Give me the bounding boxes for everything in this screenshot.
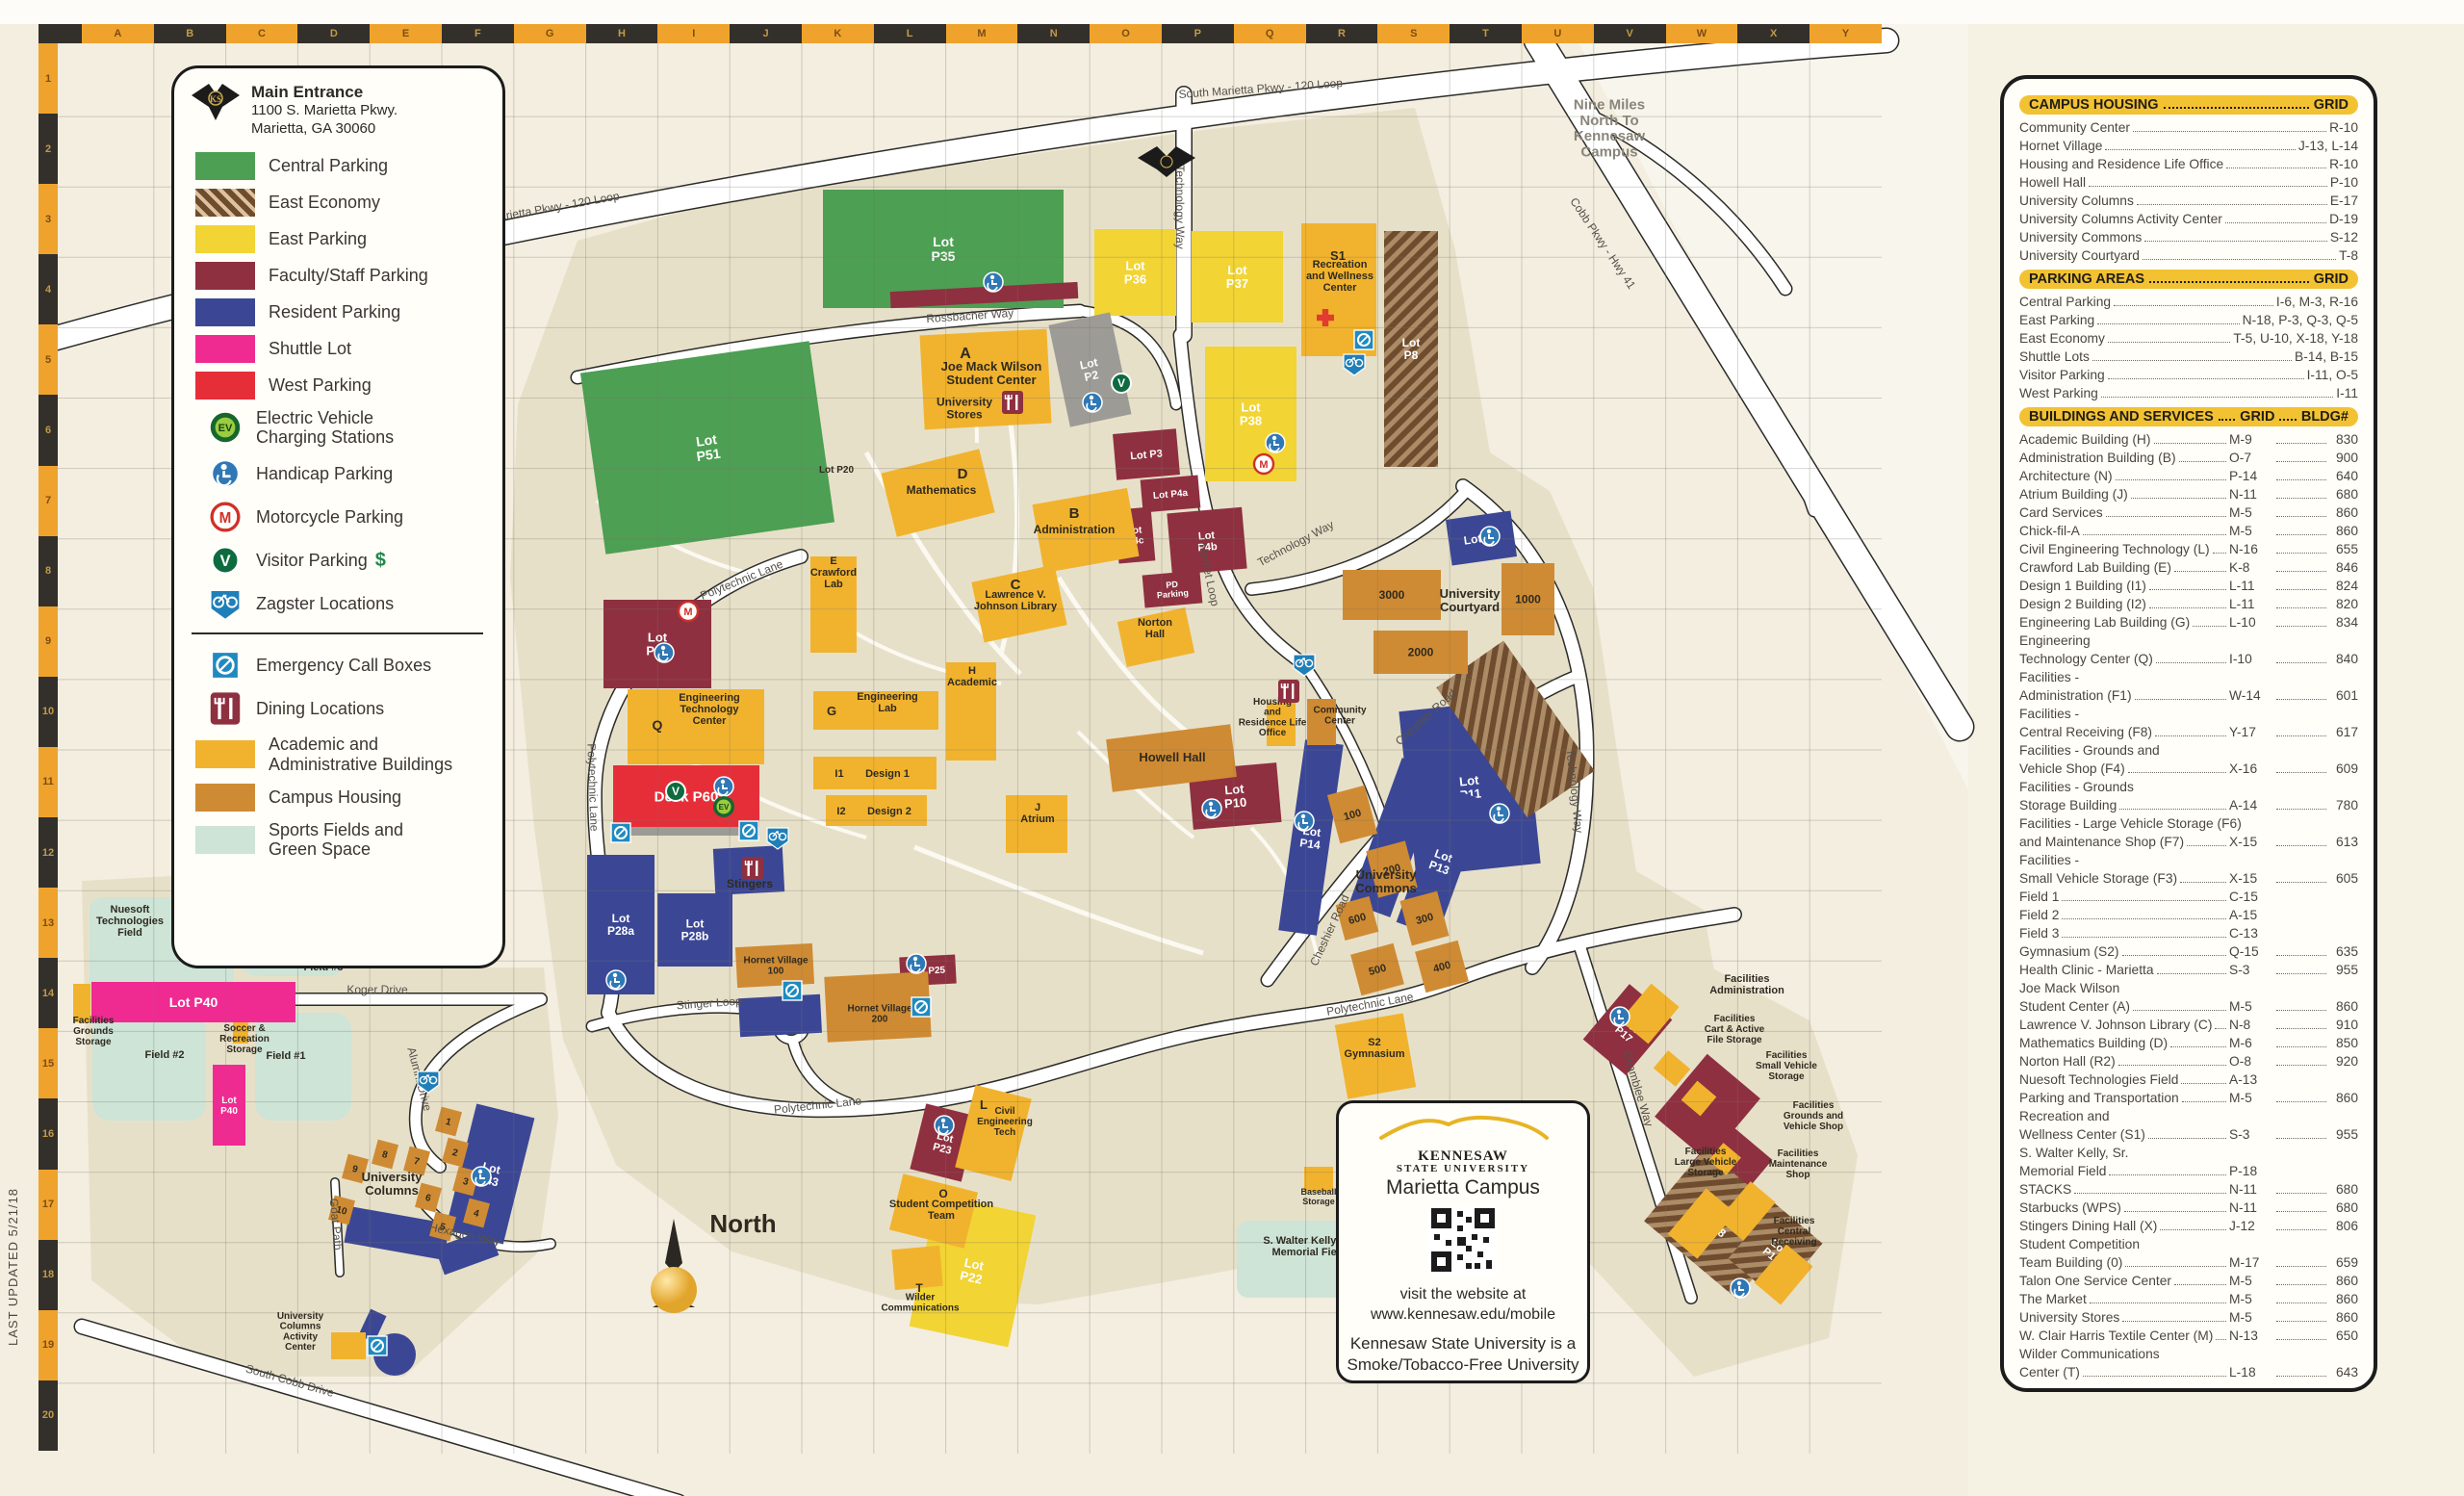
map-feature[interactable]: [331, 1332, 366, 1359]
handicap-parking-icon: [1083, 393, 1102, 412]
directory-entry[interactable]: Small Vehicle Storage (F3)X-15605: [2019, 869, 2358, 888]
legend-item: East Economy: [195, 189, 485, 217]
directory-entry[interactable]: Design 2 Building (I2)L-11820: [2019, 595, 2358, 613]
handicap-parking-icon: [1490, 804, 1509, 823]
emergency-call-box-icon: [1354, 330, 1373, 349]
svg-text:Lot P40: Lot P40: [169, 994, 218, 1010]
svg-text:LotP35: LotP35: [932, 234, 956, 264]
entrance-line: Marietta, GA 30060: [251, 120, 398, 139]
grid-column-label: G: [514, 24, 586, 43]
legend-item-label: Visitor Parking$: [256, 550, 386, 572]
directory-entry[interactable]: University ColumnsE-17: [2019, 192, 2358, 210]
svg-text:FacilitiesCentralReceiving: FacilitiesCentralReceiving: [1771, 1216, 1816, 1248]
directory-entry[interactable]: Nuesoft Technologies FieldA-13: [2019, 1070, 2358, 1089]
grid-column-label: I: [657, 24, 730, 43]
legend-item-label: Motorcycle Parking: [256, 507, 403, 528]
legend-item: Academic and Administrative Buildings: [195, 735, 485, 774]
svg-text:EV: EV: [218, 424, 233, 435]
svg-text:Design 1: Design 1: [865, 768, 910, 780]
directory-entry[interactable]: Atrium Building (J)N-11680: [2019, 485, 2358, 503]
legend-parking-list: Central ParkingEast EconomyEast ParkingF…: [190, 152, 485, 400]
ev-legend-icon: EV: [208, 410, 243, 445]
grid-row-label: 9: [38, 606, 58, 677]
svg-text:2000: 2000: [1408, 646, 1434, 659]
directory-entry-continued: Facilities -: [2019, 668, 2358, 686]
grid-row-label: 14: [38, 958, 58, 1028]
grid-row-label: 19: [38, 1310, 58, 1380]
svg-text:V: V: [1117, 376, 1125, 390]
handicap-parking-icon: [1731, 1278, 1750, 1298]
svg-text:M: M: [219, 510, 232, 527]
directory-entry[interactable]: Hornet VillageJ-13, L-14: [2019, 137, 2358, 155]
legend-symbols-list: EVElectric Vehicle Charging StationsHand…: [190, 408, 485, 621]
svg-text:Deck P60: Deck P60: [654, 788, 719, 805]
svg-text:LotP40: LotP40: [220, 1096, 238, 1117]
legend-swatch: [195, 372, 255, 400]
handicap-parking-icon: [1610, 1007, 1630, 1026]
directory-entry[interactable]: University CommonsS-12: [2019, 228, 2358, 246]
legend-item-label: East Parking: [269, 229, 367, 249]
legend-item-label: Campus Housing: [269, 787, 401, 808]
logo-text-line2: STATE UNIVERSITY: [1347, 1164, 1579, 1174]
entrance-line: Main Entrance: [251, 82, 398, 102]
handicap-parking-icon: [1480, 527, 1500, 546]
directory-entry[interactable]: Health Clinic - MariettaS-3955: [2019, 961, 2358, 979]
svg-text:V: V: [672, 785, 680, 798]
svg-text:1000: 1000: [1515, 593, 1541, 606]
ksu-owl-icon: KS: [190, 82, 242, 126]
directory-entry[interactable]: Storage BuildingA-14780: [2019, 796, 2358, 814]
svg-text:Design 2: Design 2: [867, 806, 911, 817]
motorcycle-parking-icon: M: [679, 602, 698, 621]
directory-entry[interactable]: Student Center (A)M-5860: [2019, 997, 2358, 1016]
legend-item-label: Central Parking: [269, 156, 388, 176]
directory-entry-continued: Facilities - Large Vehicle Storage (F6): [2019, 814, 2358, 833]
svg-text:LotP10: LotP10: [1222, 782, 1247, 812]
legend-item: Emergency Call Boxes: [195, 648, 485, 683]
map-feature-pd-parking[interactable]: PDParking: [1142, 570, 1203, 607]
grid-column-label: S: [1377, 24, 1450, 43]
svg-text:G: G: [827, 704, 836, 718]
svg-text:I2: I2: [836, 806, 845, 817]
grid-column-label: B: [154, 24, 226, 43]
svg-text:3000: 3000: [1379, 588, 1405, 602]
svg-text:UniversityColumns: UniversityColumns: [362, 1170, 423, 1198]
legend-item-label: Sports Fields and Green Space: [269, 820, 403, 860]
grid-column-label: Q: [1234, 24, 1306, 43]
dining-icon: [1002, 391, 1023, 414]
dining-icon: [211, 693, 240, 725]
map-feature-lot-p51[interactable]: LotP51: [580, 341, 834, 555]
legend-item: Dining Locations: [195, 691, 485, 726]
grid-column-label: X: [1737, 24, 1809, 43]
directory-entry[interactable]: University StoresM-5860: [2019, 1308, 2358, 1327]
campus-map-page: LotP35LotP51LotP36LotP37LotP38LotP22LotP…: [0, 0, 2464, 1496]
directory-entry-continued: Wilder Communications: [2019, 1345, 2358, 1363]
h-legend-icon: [208, 456, 243, 491]
directory-entry[interactable]: East ParkingN-18, P-3, Q-3, Q-5: [2019, 311, 2358, 329]
legend-item: MMotorcycle Parking: [195, 500, 485, 534]
svg-text:North: North: [709, 1209, 776, 1238]
directory-entry[interactable]: Stingers Dining Hall (X)J-12806: [2019, 1217, 2358, 1235]
grid-row-label: 18: [38, 1240, 58, 1310]
map-feature[interactable]: [613, 827, 759, 836]
directory-entry[interactable]: Talon One Service CenterM-5860: [2019, 1272, 2358, 1290]
directory-entry[interactable]: Howell HallP-10: [2019, 173, 2358, 192]
svg-text:Lawrence V.Johnson Library: Lawrence V.Johnson Library: [974, 589, 1058, 612]
map-feature[interactable]: [255, 1013, 351, 1121]
handicap-parking-icon: [472, 1167, 491, 1186]
directory-entry[interactable]: Field 2A-15: [2019, 906, 2358, 924]
handicap-parking-icon: [907, 954, 926, 973]
grid-column-label: V: [1594, 24, 1666, 43]
legend-item: West Parking: [195, 372, 485, 400]
legend-item-label: West Parking: [269, 375, 372, 396]
svg-text:B: B: [1069, 505, 1080, 522]
legend-item: Shuttle Lot: [195, 335, 485, 363]
grid-row-label: 10: [38, 677, 58, 747]
map-feature-deck-p60[interactable]: Deck P60: [613, 765, 759, 827]
grid-column-label: D: [297, 24, 370, 43]
grid-row-label: 17: [38, 1170, 58, 1240]
handicap-parking-icon: [212, 460, 239, 487]
directory-entry[interactable]: and Maintenance Shop (F7)X-15613: [2019, 833, 2358, 851]
motorcycle-parking-icon: M: [212, 503, 239, 530]
directory-entry[interactable]: Chick-fil-AM-5860: [2019, 522, 2358, 540]
legend-item-label: Dining Locations: [256, 699, 384, 719]
directory-entry[interactable]: Academic Building (H)M-9830: [2019, 430, 2358, 449]
grid-row-label: 4: [38, 254, 58, 324]
grid-column-label: K: [802, 24, 874, 43]
svg-text:Koger Drive: Koger Drive: [346, 983, 408, 996]
svg-text:LotP38: LotP38: [1240, 400, 1262, 428]
svg-text:Technology Way: Technology Way: [1173, 165, 1187, 249]
directory-entry-continued: Engineering: [2019, 632, 2358, 650]
svg-text:LotP8: LotP8: [1402, 336, 1421, 362]
directory-entry[interactable]: West ParkingI-11: [2019, 384, 2358, 402]
visitor-parking-icon: V: [666, 782, 685, 801]
legend-item: VVisitor Parking$: [195, 543, 485, 578]
grid-row-label: 15: [38, 1028, 58, 1098]
grid-row-label: 2: [38, 114, 58, 184]
map-feature-lot-p36[interactable]: LotP36: [1094, 229, 1176, 316]
handicap-parking-icon: [606, 970, 626, 990]
emergency-call-box-icon: [611, 823, 630, 842]
legend-swatch: [195, 298, 255, 326]
grid-column-label: W: [1666, 24, 1738, 43]
directory-entry[interactable]: Card ServicesM-5860: [2019, 503, 2358, 522]
directory-entry[interactable]: Visitor ParkingI-11, O-5: [2019, 366, 2358, 384]
grid-row-label: 5: [38, 324, 58, 395]
map-feature-3000[interactable]: 3000: [1343, 570, 1441, 620]
directory-entry-continued: Student Competition: [2019, 1235, 2358, 1253]
directory-entry[interactable]: Mathematics Building (D)M-6850: [2019, 1034, 2358, 1052]
emergency-call-box-icon: [783, 981, 802, 1000]
handicap-parking-icon: [654, 643, 674, 662]
grid-row-label: 12: [38, 817, 58, 888]
svg-text:Nine MilesNorth ToKennesawCamp: Nine MilesNorth ToKennesawCampus: [1574, 97, 1646, 161]
legend-item: Faculty/Staff Parking: [195, 262, 485, 290]
handicap-parking-icon: [1266, 433, 1285, 452]
entrance-line: 1100 S. Marietta Pkwy.: [251, 102, 398, 120]
grid-row-label: 16: [38, 1098, 58, 1169]
directory-entry[interactable]: Starbucks (WPS)N-11680: [2019, 1199, 2358, 1217]
motorcycle-parking-icon: M: [1254, 454, 1273, 474]
grid-column-label: J: [730, 24, 802, 43]
grid-row-label: 13: [38, 888, 58, 958]
map-feature-lot-p40[interactable]: LotP40: [213, 1065, 245, 1146]
handicap-parking-icon: [714, 777, 733, 796]
grid-column-label: U: [1522, 24, 1594, 43]
grid-row-label: 7: [38, 466, 58, 536]
directory-entry-continued: Facilities -: [2019, 851, 2358, 869]
legend-item: Handicap Parking: [195, 456, 485, 491]
legend-item-label: Emergency Call Boxes: [256, 656, 431, 676]
grid-column-label: T: [1450, 24, 1522, 43]
v-legend-icon: V: [208, 543, 243, 578]
svg-text:Field #1: Field #1: [267, 1050, 306, 1062]
directory-section-header: PARKING AREASGRID: [2019, 270, 2358, 289]
grid-column-label: A: [82, 24, 154, 43]
legend-swatch: [195, 189, 255, 217]
svg-text:Soccer &RecreationStorage: Soccer &RecreationStorage: [219, 1023, 269, 1055]
legend-item: East Parking: [195, 225, 485, 253]
emergency-call-box-icon: [212, 652, 239, 679]
svg-text:I1: I1: [834, 768, 843, 780]
map-legend: KS Main Entrance 1100 S. Marietta Pkwy. …: [171, 65, 505, 968]
svg-text:D: D: [958, 466, 968, 482]
directory-entry[interactable]: Center (T)L-18643: [2019, 1363, 2358, 1381]
svg-text:M: M: [683, 606, 692, 618]
grid-column-label: H: [586, 24, 658, 43]
directory-entry[interactable]: Crawford Lab Building (E)K-8846: [2019, 558, 2358, 577]
grid-ruler-corner: [38, 24, 58, 43]
directory-section-header: CAMPUS HOUSINGGRID: [2019, 95, 2358, 115]
ev-charging-icon: EV: [713, 796, 734, 817]
dining-icon: [742, 857, 763, 880]
directory-entry[interactable]: Administration Building (B)O-7900: [2019, 449, 2358, 467]
svg-text:Lot P20: Lot P20: [819, 465, 855, 476]
directory-entry[interactable]: Design 1 Building (I1)L-11824: [2019, 577, 2358, 595]
main-entrance-address: Main Entrance 1100 S. Marietta Pkwy. Mar…: [251, 82, 398, 139]
logo-text-line1: KENNESAW: [1347, 1149, 1579, 1164]
m-legend-icon: M: [208, 500, 243, 534]
legend-item-label: East Economy: [269, 193, 380, 213]
legend-swatch: [195, 225, 255, 253]
map-feature-lot-p3[interactable]: Lot P3: [1113, 428, 1180, 480]
svg-text:L: L: [980, 1097, 988, 1112]
legend-swatch: [195, 784, 255, 812]
legend-item-label: Academic and Administrative Buildings: [269, 735, 452, 774]
visitor-parking-icon: V: [1112, 374, 1131, 393]
directory-entry[interactable]: Technology Center (Q)I-10840: [2019, 650, 2358, 668]
directory-entry[interactable]: Lawrence V. Johnson Library (C)N-8910: [2019, 1016, 2358, 1034]
directory-entry[interactable]: Team Building (0)M-17659: [2019, 1253, 2358, 1272]
directory-entry-continued: Facilities - Grounds: [2019, 778, 2358, 796]
directory-entry[interactable]: East EconomyT-5, U-10, X-18, Y-18: [2019, 329, 2358, 348]
svg-text:Mathematics: Mathematics: [907, 483, 977, 497]
last-updated-note: LAST UPDATED 5/21/18: [6, 1188, 20, 1346]
directory-entry[interactable]: Civil Engineering Technology (L)N-16655: [2019, 540, 2358, 558]
directory-entry[interactable]: Shuttle LotsB-14, B-15: [2019, 348, 2358, 366]
smoke-free-note: Kennesaw State University is a Smoke/Tob…: [1347, 1333, 1579, 1376]
legend-item-label: Shuttle Lot: [269, 339, 351, 359]
map-feature-lot-p28b[interactable]: LotP28b: [657, 893, 732, 967]
legend-swatch: [195, 826, 255, 854]
svg-text:Howell Hall: Howell Hall: [1139, 750, 1205, 764]
ev-charging-icon: EV: [211, 413, 240, 442]
directory-entry-continued: Joe Mack Wilson: [2019, 979, 2358, 997]
campus-info-box: KENNESAW STATE UNIVERSITY Marietta Campu…: [1336, 1100, 1590, 1383]
grid-column-label: C: [226, 24, 298, 43]
directory-entry[interactable]: Vehicle Shop (F4)X-16609: [2019, 760, 2358, 778]
handicap-parking-icon: [984, 272, 1003, 292]
legend-swatch: [195, 262, 255, 290]
directory-entry[interactable]: Housing and Residence Life OfficeR-10: [2019, 155, 2358, 173]
map-feature-lot-p38[interactable]: LotP38: [1205, 347, 1296, 481]
grid-row-label: 3: [38, 184, 58, 254]
grid-row-label: 1: [38, 43, 58, 114]
legend-swatch: [195, 740, 255, 768]
map-feature-2000[interactable]: 2000: [1373, 631, 1468, 674]
grid-column-label: L: [874, 24, 946, 43]
directory-entry[interactable]: Norton Hall (R2)O-8920: [2019, 1052, 2358, 1070]
legend-swatch: [195, 152, 255, 180]
ksu-wordmark: KENNESAW STATE UNIVERSITY: [1347, 1113, 1579, 1174]
grid-column-label: E: [370, 24, 442, 43]
grid-column-label: F: [442, 24, 514, 43]
legend-swatch: [195, 335, 255, 363]
grid-column-label: M: [946, 24, 1018, 43]
legend-item-label: Electric Vehicle Charging Stations: [256, 408, 394, 448]
directory-entry[interactable]: University CourtyardT-8: [2019, 246, 2358, 265]
directory-entry[interactable]: The MarketM-5860: [2019, 1290, 2358, 1308]
legend-item: EVElectric Vehicle Charging Stations: [195, 408, 485, 448]
legend-item: Resident Parking: [195, 298, 485, 326]
legend-item: Sports Fields and Green Space: [195, 820, 485, 860]
grid-row-label: 6: [38, 395, 58, 465]
legend-item-label: Zagster Locations: [256, 594, 394, 614]
emergency-call-box-icon: [911, 997, 931, 1017]
legend-item: Zagster Locations: [195, 586, 485, 621]
directory-entry[interactable]: Central ParkingI-6, M-3, R-16: [2019, 293, 2358, 311]
grid-ruler-columns: ABCDEFGHIJKLMNOPQRSTUVWXY: [58, 24, 1882, 43]
legend-item-label: Faculty/Staff Parking: [269, 266, 428, 286]
directory-section-header: BUILDINGS AND SERVICESGRIDBLDG#: [2019, 407, 2358, 426]
svg-text:EV: EV: [719, 803, 730, 812]
map-feature-lot-p37[interactable]: LotP37: [1192, 231, 1283, 322]
directory-entry[interactable]: Community CenterR-10: [2019, 118, 2358, 137]
directory-entry[interactable]: Administration (F1)W-14601: [2019, 686, 2358, 705]
directory-entry[interactable]: Gymnasium (S2)Q-15635: [2019, 942, 2358, 961]
map-feature-1000[interactable]: 1000: [1501, 563, 1554, 635]
visitor-parking-icon: V: [212, 547, 239, 574]
map-feature-lot-p8[interactable]: LotP8: [1384, 231, 1438, 467]
legend-item: Campus Housing: [195, 784, 485, 812]
directory-entry[interactable]: Field 1C-15: [2019, 888, 2358, 906]
directory-entry[interactable]: W. Clair Harris Textile Center (M)N-1365…: [2019, 1327, 2358, 1345]
emergency-call-box-icon: [739, 821, 758, 840]
legend-services-list: Emergency Call BoxesDining LocationsAcad…: [190, 648, 485, 860]
directory-entry[interactable]: University Columns Activity CenterD-19: [2019, 210, 2358, 228]
grid-column-label: O: [1090, 24, 1162, 43]
legend-item-label: Resident Parking: [269, 302, 400, 322]
grid-column-label: N: [1017, 24, 1090, 43]
qr-code: [1428, 1205, 1498, 1275]
zagster-icon: [211, 590, 240, 619]
directory-entry[interactable]: Wellness Center (S1)S-3955: [2019, 1125, 2358, 1144]
map-feature[interactable]: [738, 994, 822, 1037]
directory-entry-continued: Facilities -: [2019, 705, 2358, 723]
legend-item-label: Handicap Parking: [256, 464, 393, 484]
map-feature-lot-p40[interactable]: Lot P40: [91, 982, 295, 1022]
svg-text:LotP37: LotP37: [1226, 263, 1248, 291]
directory-entry-continued: Facilities - Grounds and: [2019, 741, 2358, 760]
legend-item: Central Parking: [195, 152, 485, 180]
svg-text:M: M: [1259, 459, 1268, 471]
directory-entry[interactable]: Parking and TransportationM-5860: [2019, 1089, 2358, 1107]
building-directory-panel: CAMPUS HOUSINGGRIDCommunity CenterR-10Ho…: [2000, 75, 2377, 1392]
svg-text:LotP36: LotP36: [1124, 259, 1146, 287]
svg-text:Field #2: Field #2: [145, 1049, 185, 1061]
handicap-parking-icon: [1295, 812, 1314, 831]
dining-icon: [1278, 680, 1299, 703]
svg-text:Q: Q: [653, 717, 663, 733]
directory-entry[interactable]: Memorial FieldP-18: [2019, 1162, 2358, 1180]
legend-divider: [192, 632, 483, 634]
grid-column-label: P: [1162, 24, 1234, 43]
website-note: visit the website at www.kennesaw.edu/mo…: [1347, 1285, 1579, 1326]
directory-entry-continued: Recreation and: [2019, 1107, 2358, 1125]
directory-entry-continued: S. Walter Kelly, Sr.: [2019, 1144, 2358, 1162]
svg-text:Joe Mack WilsonStudent Center: Joe Mack WilsonStudent Center: [941, 359, 1042, 387]
grid-row-label: 8: [38, 536, 58, 606]
grid-column-label: R: [1306, 24, 1378, 43]
directory-entry[interactable]: Engineering Lab Building (G)L-10834: [2019, 613, 2358, 632]
svg-text:UniversityCommons: UniversityCommons: [1355, 867, 1417, 895]
emergency-call-box-icon: [368, 1336, 387, 1355]
paid-parking-dollar-icon: $: [375, 550, 386, 571]
ksu-mountain-logo-icon: [1372, 1113, 1554, 1146]
svg-text:BaseballStorage: BaseballStorage: [1300, 1187, 1336, 1206]
grid-column-label: Y: [1809, 24, 1882, 43]
directory-entry[interactable]: STACKSN-11680: [2019, 1180, 2358, 1199]
call-legend-icon: [208, 648, 243, 683]
campus-name: Marietta Campus: [1347, 1176, 1579, 1199]
grid-row-label: 11: [38, 747, 58, 817]
svg-text:Administration: Administration: [1034, 523, 1116, 536]
svg-text:KS: KS: [210, 94, 221, 104]
grid-ruler-rows: 1234567891011121314151617181920: [38, 43, 58, 1451]
z-legend-icon: [208, 586, 243, 621]
svg-text:UniversityCourtyard: UniversityCourtyard: [1440, 586, 1501, 614]
directory-entry[interactable]: Field 3C-13: [2019, 924, 2358, 942]
directory-entry[interactable]: Central Receiving (F8)Y-17617: [2019, 723, 2358, 741]
dine-legend-icon: [208, 691, 243, 726]
svg-text:V: V: [219, 552, 230, 570]
directory-entry[interactable]: Architecture (N)P-14640: [2019, 467, 2358, 485]
handicap-parking-icon: [1202, 799, 1221, 818]
handicap-parking-icon: [935, 1116, 954, 1135]
grid-row-label: 20: [38, 1380, 58, 1451]
svg-text:FacilitiesGroundsStorage: FacilitiesGroundsStorage: [73, 1016, 115, 1047]
